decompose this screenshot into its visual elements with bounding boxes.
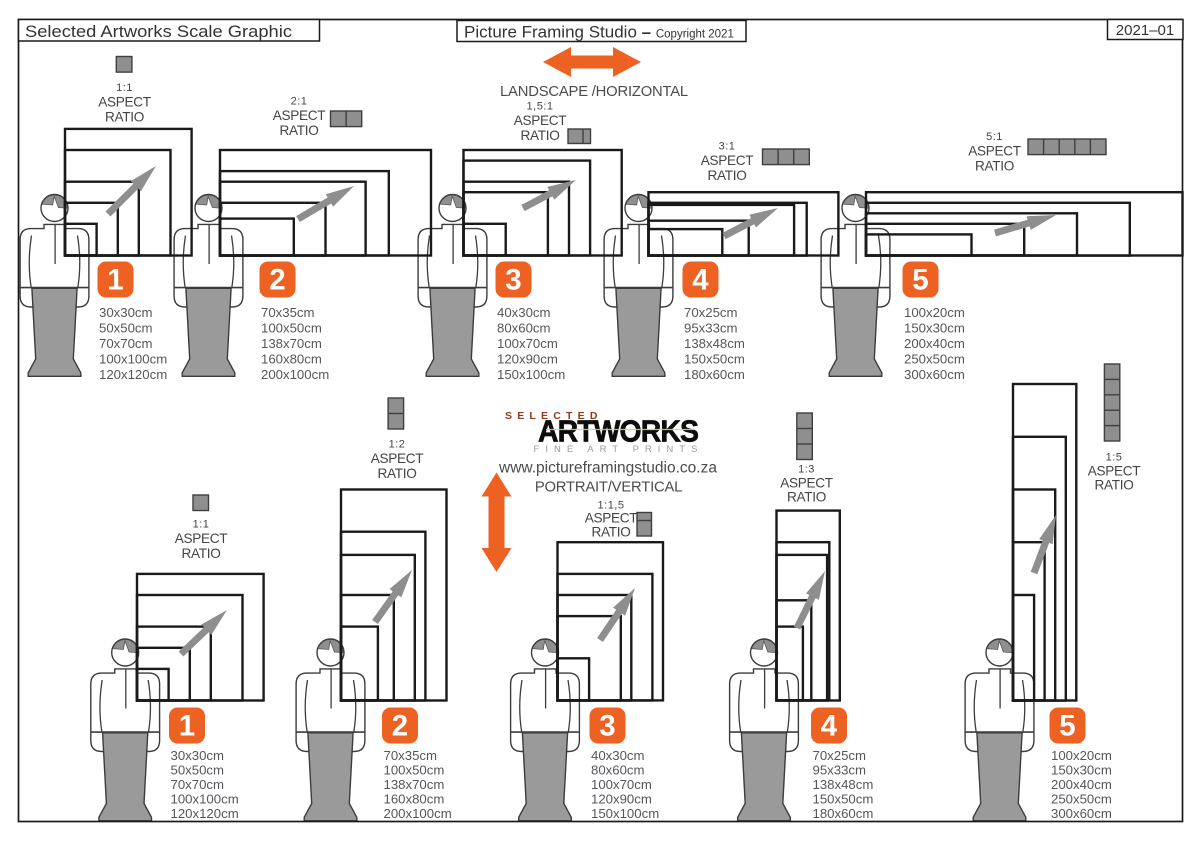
svg-text:300x60cm: 300x60cm bbox=[904, 367, 965, 382]
svg-text:70x35cm: 70x35cm bbox=[384, 748, 438, 763]
svg-text:ASPECT: ASPECT bbox=[585, 511, 638, 526]
svg-text:120x120cm: 120x120cm bbox=[171, 806, 239, 821]
svg-text:ASPECT: ASPECT bbox=[175, 531, 228, 546]
svg-text:200x40cm: 200x40cm bbox=[904, 336, 965, 351]
svg-text:5:1: 5:1 bbox=[986, 131, 1003, 143]
svg-text:100x50cm: 100x50cm bbox=[261, 321, 322, 336]
svg-text:3: 3 bbox=[599, 710, 615, 743]
svg-text:150x50cm: 150x50cm bbox=[813, 792, 874, 807]
svg-text:1:2: 1:2 bbox=[389, 439, 406, 451]
svg-text:1:1: 1:1 bbox=[116, 82, 133, 94]
svg-text:PORTRAIT/VERTICAL: PORTRAIT/VERTICAL bbox=[535, 480, 682, 496]
svg-text:30x30cm: 30x30cm bbox=[171, 748, 225, 763]
svg-text:250x50cm: 250x50cm bbox=[1051, 792, 1112, 807]
svg-text:RATIO: RATIO bbox=[707, 168, 746, 183]
svg-text:RATIO: RATIO bbox=[105, 110, 144, 125]
svg-text:RATIO: RATIO bbox=[1094, 478, 1133, 493]
svg-text:160x80cm: 160x80cm bbox=[261, 352, 322, 367]
svg-text:RATIO: RATIO bbox=[591, 525, 630, 540]
svg-text:ASPECT: ASPECT bbox=[1088, 463, 1141, 478]
svg-text:4: 4 bbox=[821, 710, 838, 743]
svg-text:150x30cm: 150x30cm bbox=[904, 321, 965, 336]
svg-text:300x60cm: 300x60cm bbox=[1051, 806, 1112, 821]
svg-text:150x100cm: 150x100cm bbox=[497, 367, 565, 382]
svg-text:RATIO: RATIO bbox=[975, 159, 1014, 174]
svg-text:2021–01: 2021–01 bbox=[1116, 22, 1174, 39]
svg-text:120x90cm: 120x90cm bbox=[591, 792, 652, 807]
svg-text:138x70cm: 138x70cm bbox=[261, 336, 322, 351]
svg-text:150x30cm: 150x30cm bbox=[1051, 763, 1112, 778]
svg-text:80x60cm: 80x60cm bbox=[591, 763, 645, 778]
svg-text:138x48cm: 138x48cm bbox=[813, 777, 874, 792]
svg-text:95x33cm: 95x33cm bbox=[813, 763, 867, 778]
svg-text:150x50cm: 150x50cm bbox=[684, 352, 745, 367]
svg-text:ASPECT: ASPECT bbox=[514, 113, 567, 128]
svg-text:70x70cm: 70x70cm bbox=[99, 336, 153, 351]
svg-text:ASPECT: ASPECT bbox=[273, 108, 326, 123]
svg-text:RATIO: RATIO bbox=[181, 546, 220, 561]
svg-text:3: 3 bbox=[505, 264, 521, 297]
svg-text:LANDSCAPE /HORIZONTAL: LANDSCAPE /HORIZONTAL bbox=[500, 84, 688, 100]
svg-text:150x100cm: 150x100cm bbox=[591, 806, 659, 821]
svg-text:RATIO: RATIO bbox=[787, 490, 826, 505]
svg-text:Selected Artworks Scale Graphi: Selected Artworks Scale Graphic bbox=[25, 22, 293, 41]
svg-text:70x70cm: 70x70cm bbox=[171, 777, 225, 792]
svg-text:100x100cm: 100x100cm bbox=[99, 352, 167, 367]
svg-text:ASPECT: ASPECT bbox=[701, 153, 754, 168]
svg-text:70x25cm: 70x25cm bbox=[813, 748, 867, 763]
svg-text:2: 2 bbox=[392, 710, 408, 743]
svg-text:1: 1 bbox=[107, 264, 123, 297]
svg-text:70x35cm: 70x35cm bbox=[261, 305, 315, 320]
svg-text:RATIO: RATIO bbox=[377, 466, 416, 481]
svg-text:FINE ART PRINTS: FINE ART PRINTS bbox=[534, 444, 704, 455]
svg-text:1: 1 bbox=[179, 710, 195, 743]
svg-text:ASPECT: ASPECT bbox=[98, 94, 151, 109]
svg-text:RATIO: RATIO bbox=[520, 128, 559, 143]
svg-text:40x30cm: 40x30cm bbox=[591, 748, 645, 763]
svg-text:100x20cm: 100x20cm bbox=[904, 305, 965, 320]
svg-text:1:3: 1:3 bbox=[798, 464, 815, 476]
svg-text:100x70cm: 100x70cm bbox=[591, 777, 652, 792]
svg-text:100x20cm: 100x20cm bbox=[1051, 748, 1112, 763]
svg-text:180x60cm: 180x60cm bbox=[684, 367, 745, 382]
svg-text:1,5:1: 1,5:1 bbox=[527, 101, 554, 113]
svg-text:www.pictureframingstudio.co.za: www.pictureframingstudio.co.za bbox=[498, 460, 717, 477]
svg-text:200x100cm: 200x100cm bbox=[384, 806, 452, 821]
svg-text:120x90cm: 120x90cm bbox=[497, 352, 558, 367]
svg-text:180x60cm: 180x60cm bbox=[813, 806, 874, 821]
svg-text:4: 4 bbox=[692, 264, 709, 297]
svg-text:70x25cm: 70x25cm bbox=[684, 305, 738, 320]
svg-text:100x50cm: 100x50cm bbox=[384, 763, 445, 778]
svg-text:ASPECT: ASPECT bbox=[780, 475, 833, 490]
svg-text:1:1: 1:1 bbox=[193, 519, 210, 531]
svg-text:5: 5 bbox=[912, 264, 928, 297]
svg-text:50x50cm: 50x50cm bbox=[171, 763, 225, 778]
svg-text:100x100cm: 100x100cm bbox=[171, 792, 239, 807]
svg-text:250x50cm: 250x50cm bbox=[904, 352, 965, 367]
svg-text:1:5: 1:5 bbox=[1106, 452, 1123, 464]
svg-text:40x30cm: 40x30cm bbox=[497, 305, 551, 320]
svg-text:138x70cm: 138x70cm bbox=[384, 777, 445, 792]
svg-text:138x48cm: 138x48cm bbox=[684, 336, 745, 351]
svg-text:2:1: 2:1 bbox=[291, 96, 308, 108]
svg-text:3:1: 3:1 bbox=[719, 141, 736, 153]
svg-text:160x80cm: 160x80cm bbox=[384, 792, 445, 807]
svg-text:ASPECT: ASPECT bbox=[968, 143, 1021, 158]
svg-text:200x100cm: 200x100cm bbox=[261, 367, 329, 382]
svg-text:5: 5 bbox=[1059, 710, 1075, 743]
svg-text:200x40cm: 200x40cm bbox=[1051, 777, 1112, 792]
svg-text:RATIO: RATIO bbox=[279, 123, 318, 138]
svg-text:120x120cm: 120x120cm bbox=[99, 367, 167, 382]
svg-text:30x30cm: 30x30cm bbox=[99, 305, 153, 320]
svg-text:80x60cm: 80x60cm bbox=[497, 321, 551, 336]
svg-text:95x33cm: 95x33cm bbox=[684, 321, 738, 336]
svg-text:100x70cm: 100x70cm bbox=[497, 336, 558, 351]
svg-text:2: 2 bbox=[269, 264, 285, 297]
svg-text:ASPECT: ASPECT bbox=[371, 451, 424, 466]
svg-text:50x50cm: 50x50cm bbox=[99, 321, 153, 336]
